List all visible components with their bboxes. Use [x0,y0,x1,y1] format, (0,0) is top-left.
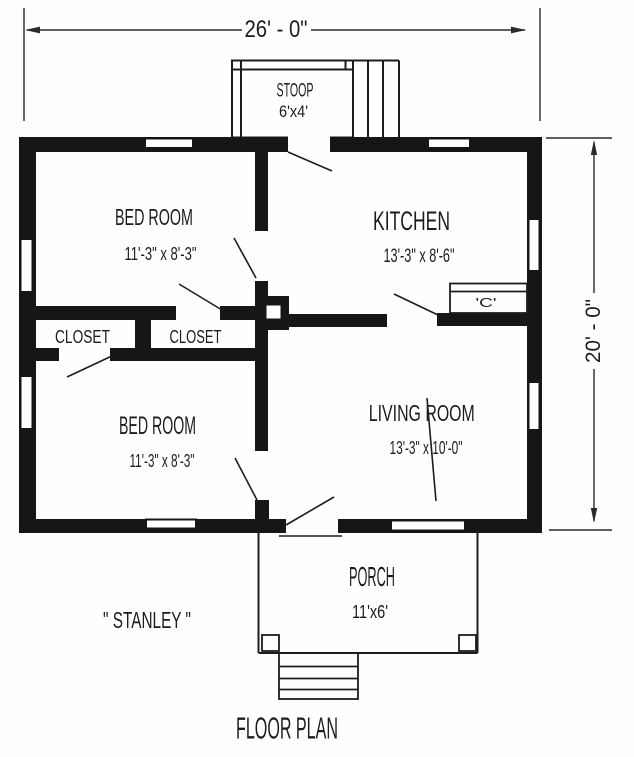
svg-text:13'-3" x 8'-6": 13'-3" x 8'-6" [384,246,455,267]
svg-text:FLOOR PLAN: FLOOR PLAN [236,711,338,746]
svg-text:11'x6': 11'x6' [352,602,388,622]
svg-text:CLOSET: CLOSET [55,327,110,347]
svg-text:26' - 0": 26' - 0" [245,16,308,43]
svg-text:13'-3" x 10'-0": 13'-3" x 10'-0" [390,438,463,458]
svg-text:6'x4': 6'x4' [279,102,308,121]
svg-text:BED ROOM: BED ROOM [115,204,193,230]
svg-text:20' - 0": 20' - 0" [582,299,605,363]
svg-text:STOOP: STOOP [277,81,314,102]
svg-text:" STANLEY ": " STANLEY " [103,607,191,633]
svg-text:'C': 'C' [476,295,497,310]
svg-text:KITCHEN: KITCHEN [373,206,450,236]
svg-text:11'-3" x 8'-3": 11'-3" x 8'-3" [125,244,197,264]
svg-text:BED ROOM: BED ROOM [119,412,196,440]
svg-text:PORCH: PORCH [349,561,395,592]
svg-text:LIVING ROOM: LIVING ROOM [369,400,475,426]
svg-text:CLOSET: CLOSET [170,327,222,347]
svg-text:11'-3" x 8'-3": 11'-3" x 8'-3" [130,451,195,471]
